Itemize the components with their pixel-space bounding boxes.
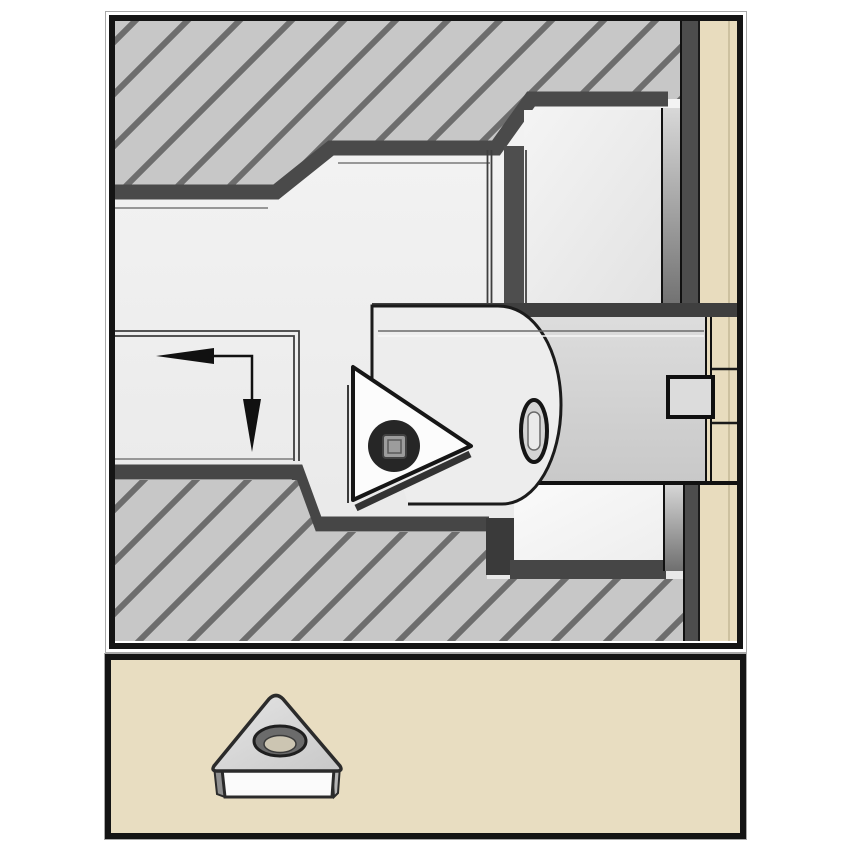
insert-screw-head xyxy=(383,435,406,458)
panel-background xyxy=(111,660,740,833)
icon-front-face xyxy=(222,769,334,797)
insert-thumbnail-panel xyxy=(105,654,747,840)
upper-recess-left-wall xyxy=(504,146,524,310)
main-scene-panel xyxy=(106,12,747,653)
lower-recess-left-wall xyxy=(486,518,514,575)
machining-illustration xyxy=(0,0,854,854)
cartridge-slot-core xyxy=(528,412,540,450)
icon-hole-core xyxy=(264,736,296,753)
clamp-key-notch xyxy=(668,377,713,417)
upper-recess-interior xyxy=(524,110,664,310)
lower-hatch-under-recess xyxy=(487,579,684,641)
workpiece-end-face-upper xyxy=(681,21,698,310)
lower-recess-bottom-band xyxy=(510,560,666,579)
catalog-figure xyxy=(0,0,854,854)
lower-recess-right-wall xyxy=(664,483,684,571)
workpiece-end-face-lower xyxy=(684,483,698,643)
upper-recess-right-wall xyxy=(662,108,681,310)
lower-recess-interior xyxy=(514,483,664,560)
